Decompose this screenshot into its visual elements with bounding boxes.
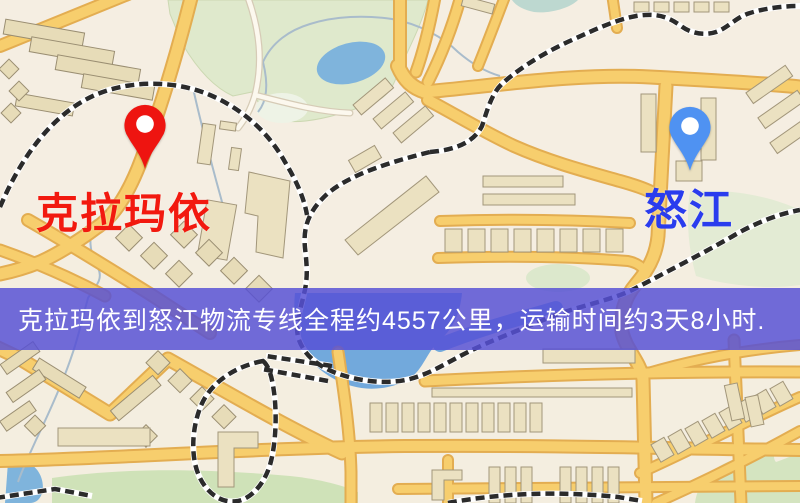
destination-pin-hole	[681, 117, 699, 135]
route-info-text: 克拉玛依到怒江物流专线全程约4557公里，运输时间约3天8小时.	[0, 301, 765, 337]
destination-pin-icon[interactable]	[667, 104, 713, 172]
origin-label: 克拉玛依	[36, 180, 212, 241]
route-info-banner: 克拉玛依到怒江物流专线全程约4557公里，运输时间约3天8小时.	[0, 288, 800, 350]
destination-pin-shape	[669, 107, 710, 171]
destination-label: 怒江	[644, 176, 734, 238]
origin-pin-shape	[124, 105, 165, 169]
origin-pin-icon[interactable]	[122, 102, 168, 170]
map-screenshot: 克拉玛依 怒江 克拉玛依到怒江物流专线全程约4557公里，运输时间约3天8小时.	[0, 0, 800, 503]
map-canvas	[0, 0, 800, 503]
origin-pin-hole	[136, 115, 154, 133]
